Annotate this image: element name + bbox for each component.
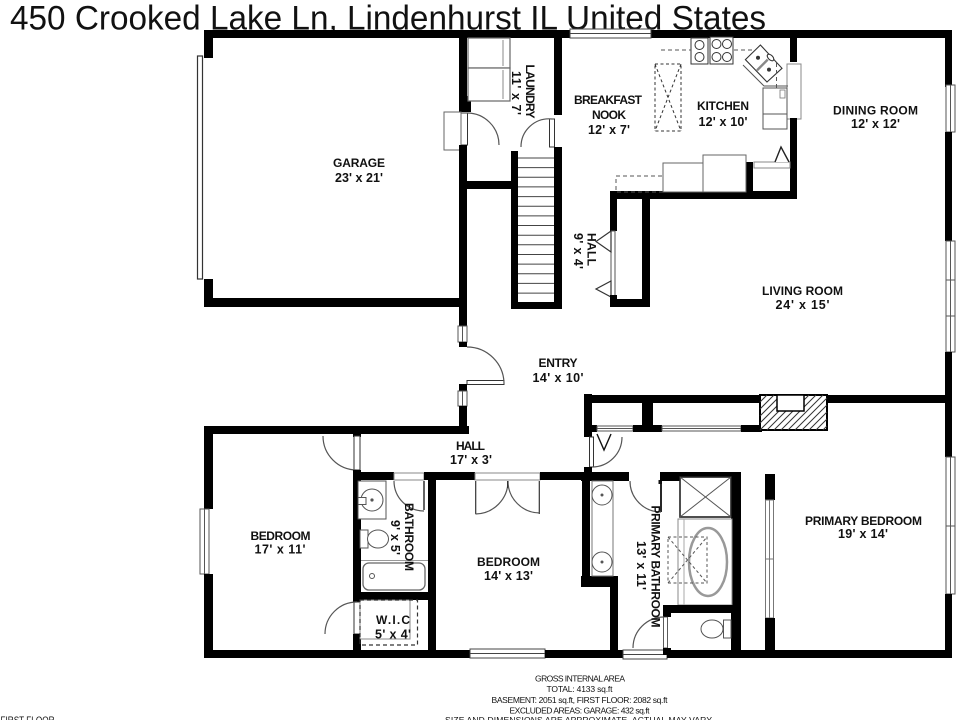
svg-text:12' x 7': 12' x 7' bbox=[588, 123, 630, 137]
svg-text:BEDROOM: BEDROOM bbox=[477, 555, 540, 569]
svg-text:SIZE AND DIMENSIONS ARE APPROX: SIZE AND DIMENSIONS ARE APPROXIMATE, ACT… bbox=[445, 715, 712, 720]
svg-text:BREAKFAST: BREAKFAST bbox=[574, 93, 643, 107]
svg-text:11' x 7': 11' x 7' bbox=[509, 71, 523, 115]
svg-text:NOOK: NOOK bbox=[592, 108, 626, 122]
svg-text:12' x 12': 12' x 12' bbox=[851, 117, 900, 131]
svg-text:TOTAL: 4133 sq.ft: TOTAL: 4133 sq.ft bbox=[547, 684, 614, 694]
svg-text:14' x 10': 14' x 10' bbox=[533, 371, 584, 385]
svg-text:LIVING ROOM: LIVING ROOM bbox=[762, 284, 843, 298]
svg-text:PRIMARY BEDROOM: PRIMARY BEDROOM bbox=[805, 514, 922, 528]
svg-text:BATHROOM: BATHROOM bbox=[402, 503, 416, 571]
svg-text:17' x 11': 17' x 11' bbox=[255, 543, 306, 557]
svg-text:LAUNDRY: LAUNDRY bbox=[523, 65, 537, 119]
svg-text:EXCLUDED AREAS: GARAGE: 432 sq: EXCLUDED AREAS: GARAGE: 432 sq.ft bbox=[510, 706, 651, 716]
svg-text:HALL: HALL bbox=[585, 233, 599, 266]
svg-text:19' x 14': 19' x 14' bbox=[838, 527, 888, 541]
svg-text:BEDROOM: BEDROOM bbox=[251, 529, 311, 543]
svg-text:PRIMARY BATHROOM: PRIMARY BATHROOM bbox=[649, 506, 663, 628]
svg-text:KITCHEN: KITCHEN bbox=[697, 99, 749, 113]
svg-text:FIRST FLOOR: FIRST FLOOR bbox=[1, 716, 55, 720]
svg-text:5' x 4': 5' x 4' bbox=[375, 628, 411, 642]
svg-text:ENTRY: ENTRY bbox=[539, 356, 578, 370]
svg-text:GARAGE: GARAGE bbox=[333, 156, 385, 170]
svg-text:DINING ROOM: DINING ROOM bbox=[833, 104, 918, 118]
svg-text:12' x 10': 12' x 10' bbox=[699, 115, 748, 129]
svg-text:HALL: HALL bbox=[456, 439, 485, 453]
svg-text:13' x 11': 13' x 11' bbox=[634, 541, 648, 590]
svg-text:W.I.C: W.I.C bbox=[376, 613, 410, 627]
svg-text:24' x 15': 24' x 15' bbox=[776, 298, 830, 312]
svg-text:23' x 21': 23' x 21' bbox=[335, 171, 383, 185]
svg-text:BASEMENT: 2051 sq.ft, FIRST FL: BASEMENT: 2051 sq.ft, FIRST FLOOR: 2082 … bbox=[492, 695, 669, 705]
svg-text:17' x 3': 17' x 3' bbox=[450, 453, 492, 467]
svg-text:9' x 5': 9' x 5' bbox=[388, 520, 402, 555]
svg-text:GROSS INTERNAL AREA: GROSS INTERNAL AREA bbox=[535, 674, 625, 684]
svg-text:14' x 13': 14' x 13' bbox=[484, 569, 533, 583]
svg-text:9' x 4': 9' x 4' bbox=[571, 233, 585, 269]
